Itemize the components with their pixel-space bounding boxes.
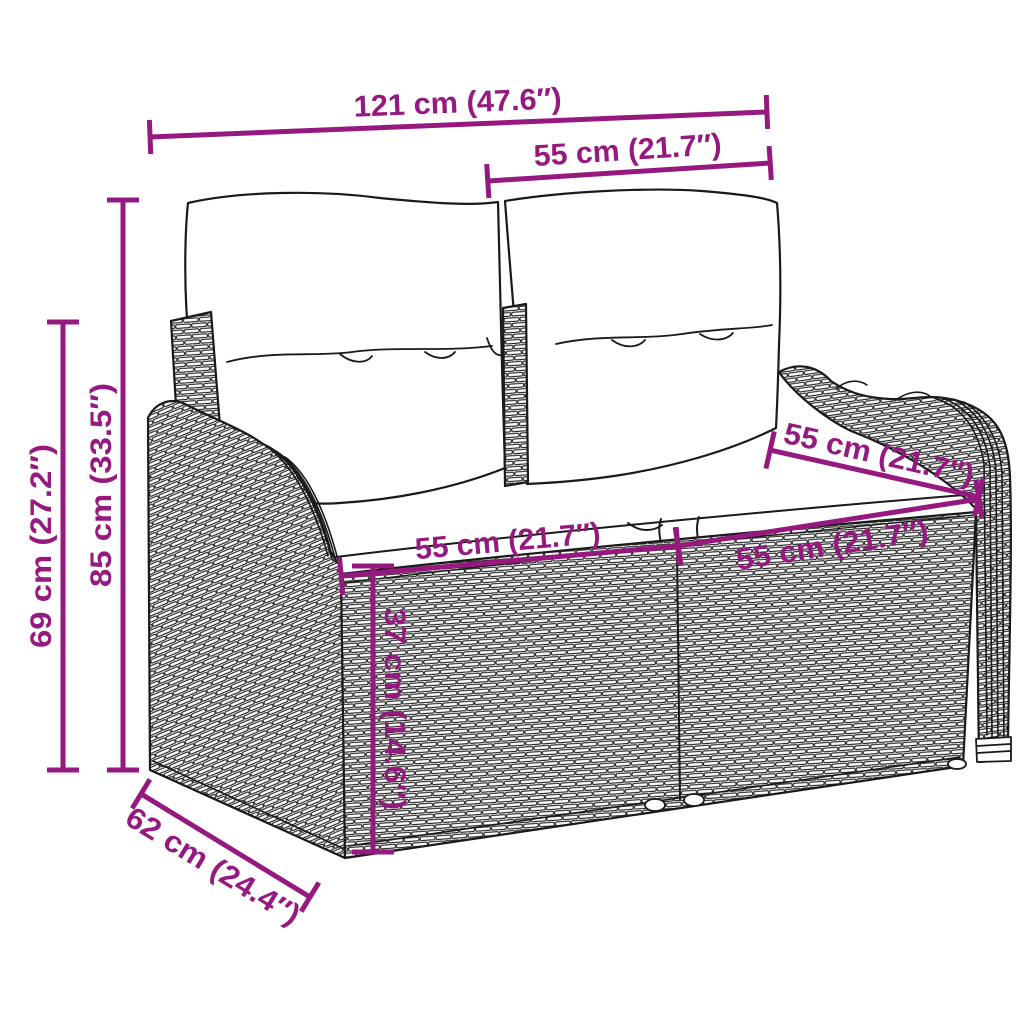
dimension-tick-start [149, 120, 150, 154]
dimension-total-height: 85 cm (33.5″) [85, 200, 139, 770]
diagram-canvas: 121 cm (47.6″) 55 cm (21.7″) 85 cm (33.5… [0, 0, 1024, 1024]
dimension-label-total-height: 85 cm (33.5″) [85, 383, 118, 587]
dimension-tick-start [339, 557, 342, 595]
dimension-tick-start [487, 164, 489, 198]
dimension-label-seat-height: 37 cm (14.6″) [378, 608, 411, 810]
dimension-armrest-height: 69 cm (27.2″) [25, 322, 79, 770]
center-back-strip [503, 304, 528, 486]
diagram-stage: 121 cm (47.6″) 55 cm (21.7″) 85 cm (33.5… [0, 0, 1024, 1024]
dimension-label-armrest-height: 69 cm (27.2″) [25, 444, 58, 648]
dimension-tick-end [301, 883, 319, 912]
right-foot-band [976, 737, 1011, 762]
dimension-back-section-width: 55 cm (21.7″) [485, 125, 771, 198]
dimension-label-total-width: 121 cm (47.6″) [353, 82, 562, 123]
dimension-tick-end [769, 146, 771, 180]
dimension-tick-end [766, 95, 767, 129]
